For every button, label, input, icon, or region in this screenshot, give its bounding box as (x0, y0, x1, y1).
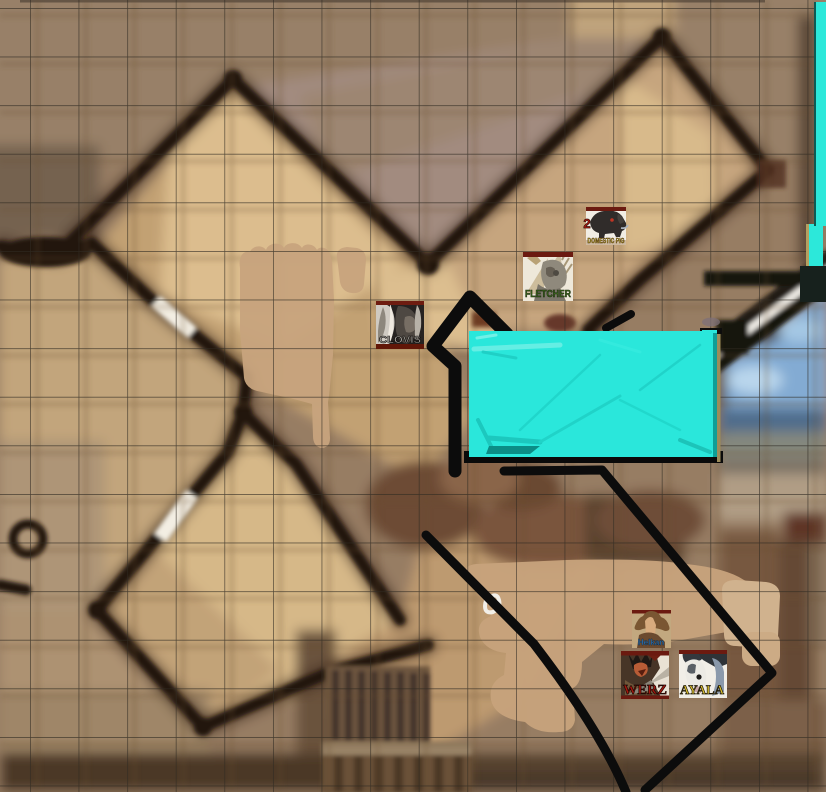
svg-text:WERZ: WERZ (623, 683, 667, 698)
svg-text:2: 2 (583, 216, 590, 231)
svg-text:CLOVIS: CLOVIS (379, 334, 421, 346)
svg-text:DOMESTIC PIG: DOMESTIC PIG (588, 238, 625, 245)
svg-text:Helkan: Helkan (638, 638, 664, 647)
svg-text:AYALA: AYALA (680, 682, 725, 697)
svg-text:FLETCHER: FLETCHER (525, 289, 572, 300)
